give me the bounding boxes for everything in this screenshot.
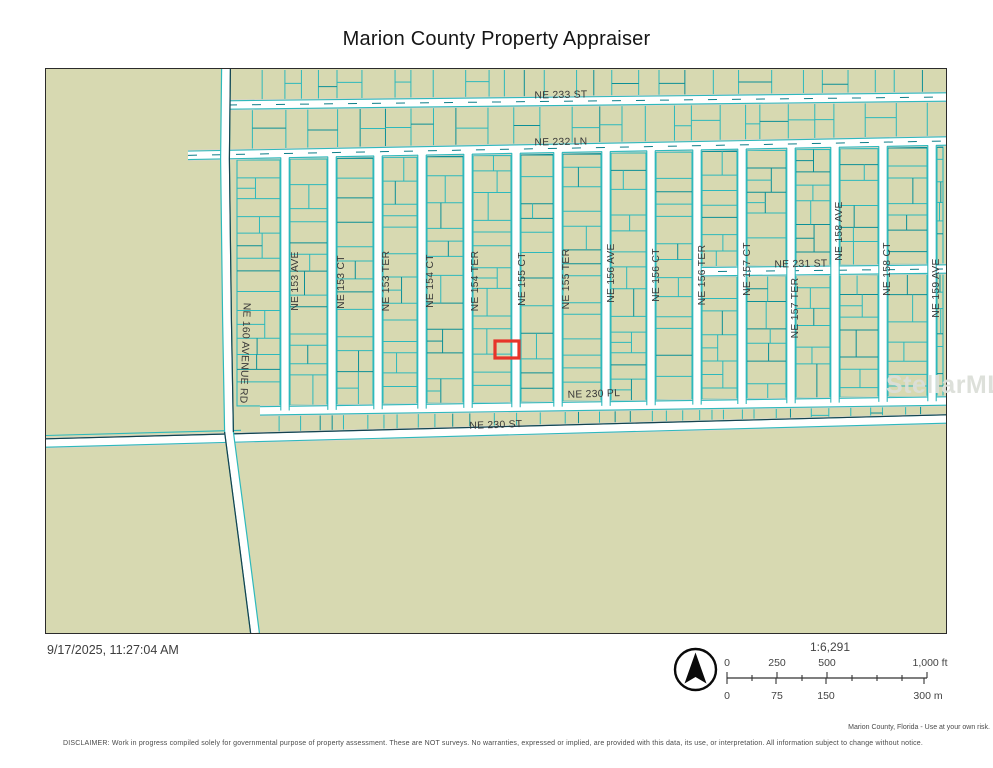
page-title: Marion County Property Appraiser: [0, 28, 993, 51]
street-label-ne-155-ter: NE 155 TER: [561, 249, 572, 310]
map-frame: NE 233 STNE 232 LNNE 231 STNE 230 PLNE 2…: [45, 68, 947, 634]
scale-ft-max: 1,000 ft: [912, 657, 947, 669]
street-label-ne-155-ct: NE 155 CT: [517, 252, 528, 306]
street-label-ne-154-ct: NE 154 CT: [425, 254, 436, 308]
street-label-ne-158-ct: NE 158 CT: [882, 242, 893, 296]
street-label-ne-153-ave: NE 153 AVE: [290, 251, 301, 310]
street-label-ne-158-ave: NE 158 AVE: [834, 201, 845, 260]
scale-ft-250: 250: [768, 657, 786, 669]
disclaimer: DISCLAIMER: Work in progress compiled so…: [63, 740, 990, 747]
scale-ft-1000: 500: [818, 657, 836, 669]
scale-m-max: 300 m: [913, 690, 942, 702]
watermark: StellarMLS: [886, 371, 993, 400]
timestamp: 9/17/2025, 11:27:04 AM: [47, 643, 179, 657]
scale-m-75: 75: [771, 690, 783, 702]
street-label-ne-157-ter: NE 157 TER: [790, 278, 801, 339]
scale-ratio: 1:6,291: [760, 640, 900, 654]
scale-m-0: 0: [724, 690, 730, 702]
street-label-ne-157-ct: NE 157 CT: [742, 242, 753, 296]
street-label-ne-154-ter: NE 154 TER: [470, 251, 481, 312]
page: { "title": "Marion County Property Appra…: [0, 0, 993, 768]
street-label-ne-230-pl: NE 230 PL: [567, 388, 620, 401]
street-label-ne-153-ct: NE 153 CT: [336, 255, 347, 309]
street-label-ne-156-ave: NE 156 AVE: [606, 243, 617, 302]
scale-ft-0: 0: [724, 657, 730, 669]
attribution: Marion County, Florida - Use at your own…: [848, 724, 990, 731]
street-label-ne-230-st: NE 230 ST: [469, 419, 523, 432]
street-label-ne-156-ct: NE 156 CT: [651, 248, 662, 302]
map-canvas: NE 233 STNE 232 LNNE 231 STNE 230 PLNE 2…: [46, 69, 946, 633]
north-arrow-icon: [672, 646, 719, 693]
scale-bar: [725, 671, 931, 685]
street-label-ne-156-ter: NE 156 TER: [697, 245, 708, 306]
street-label-ne-233-st: NE 233 ST: [534, 90, 588, 102]
street-label-ne-231-st: NE 231 ST: [774, 259, 828, 271]
street-label-ne-159-ave: NE 159 AVE: [931, 258, 942, 317]
street-label-ne-232-ln: NE 232 LN: [534, 137, 587, 149]
street-label-ne-153-ter: NE 153 TER: [381, 251, 392, 312]
scale-m-150: 150: [817, 690, 835, 702]
